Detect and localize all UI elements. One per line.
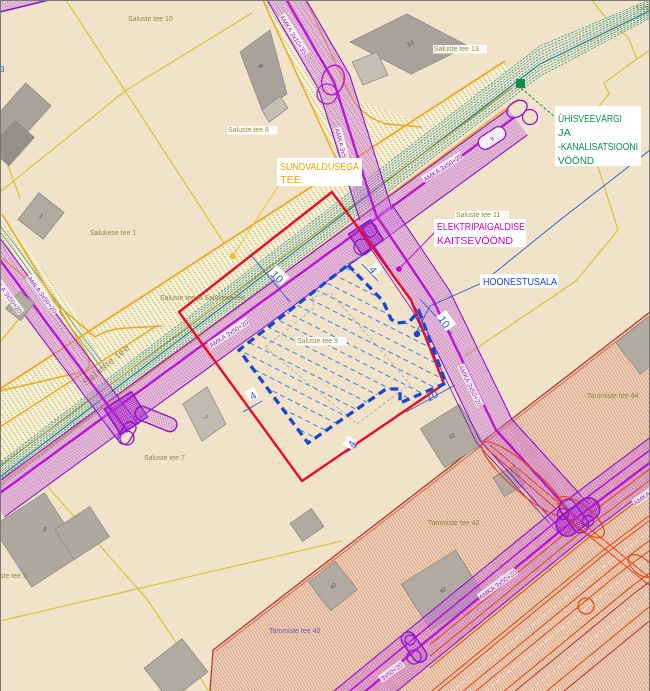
svg-text:TEE: TEE xyxy=(280,174,301,186)
svg-text:ELEKTRIPAIGALDISE: ELEKTRIPAIGALDISE xyxy=(437,222,525,233)
svg-text:Lüsi: Lüsi xyxy=(637,5,650,12)
svg-text:JA: JA xyxy=(558,128,571,139)
svg-text:Saluste tee 8: Saluste tee 8 xyxy=(228,127,269,134)
svg-text:Tammiste tee 44: Tammiste tee 44 xyxy=(587,393,638,400)
svg-text:Saluste tee 9: Saluste tee 9 xyxy=(297,338,338,345)
svg-text:-KANALISATSIOONI: -KANALISATSIOONI xyxy=(558,142,638,153)
svg-text:ÜHISVEEVÄRGI: ÜHISVEEVÄRGI xyxy=(558,113,622,125)
svg-text:Saluste tee ja Salukese tee: Saluste tee ja Salukese tee xyxy=(160,295,245,302)
svg-text:HOONESTUSALA: HOONESTUSALA xyxy=(483,276,557,288)
svg-text:Tammiste tee 42: Tammiste tee 42 xyxy=(428,520,479,527)
svg-text:Tammiste tee 40: Tammiste tee 40 xyxy=(269,628,320,635)
svg-text:Salukese tee 1: Salukese tee 1 xyxy=(90,230,136,237)
svg-text:Saluste tee 13: Saluste tee 13 xyxy=(434,46,479,53)
svg-text:Saluste tee 11: Saluste tee 11 xyxy=(456,212,500,219)
svg-text:SUNDVALDUSEGA: SUNDVALDUSEGA xyxy=(280,161,359,173)
svg-text:VÖÖND: VÖÖND xyxy=(558,155,594,167)
svg-text:KAITSEVÖÖND: KAITSEVÖÖND xyxy=(437,235,513,247)
svg-text:Saluste tee 10: Saluste tee 10 xyxy=(128,16,173,23)
svg-text:Saluste tee 7: Saluste tee 7 xyxy=(144,455,185,462)
svg-text:ste tee 5: ste tee 5 xyxy=(0,573,27,580)
